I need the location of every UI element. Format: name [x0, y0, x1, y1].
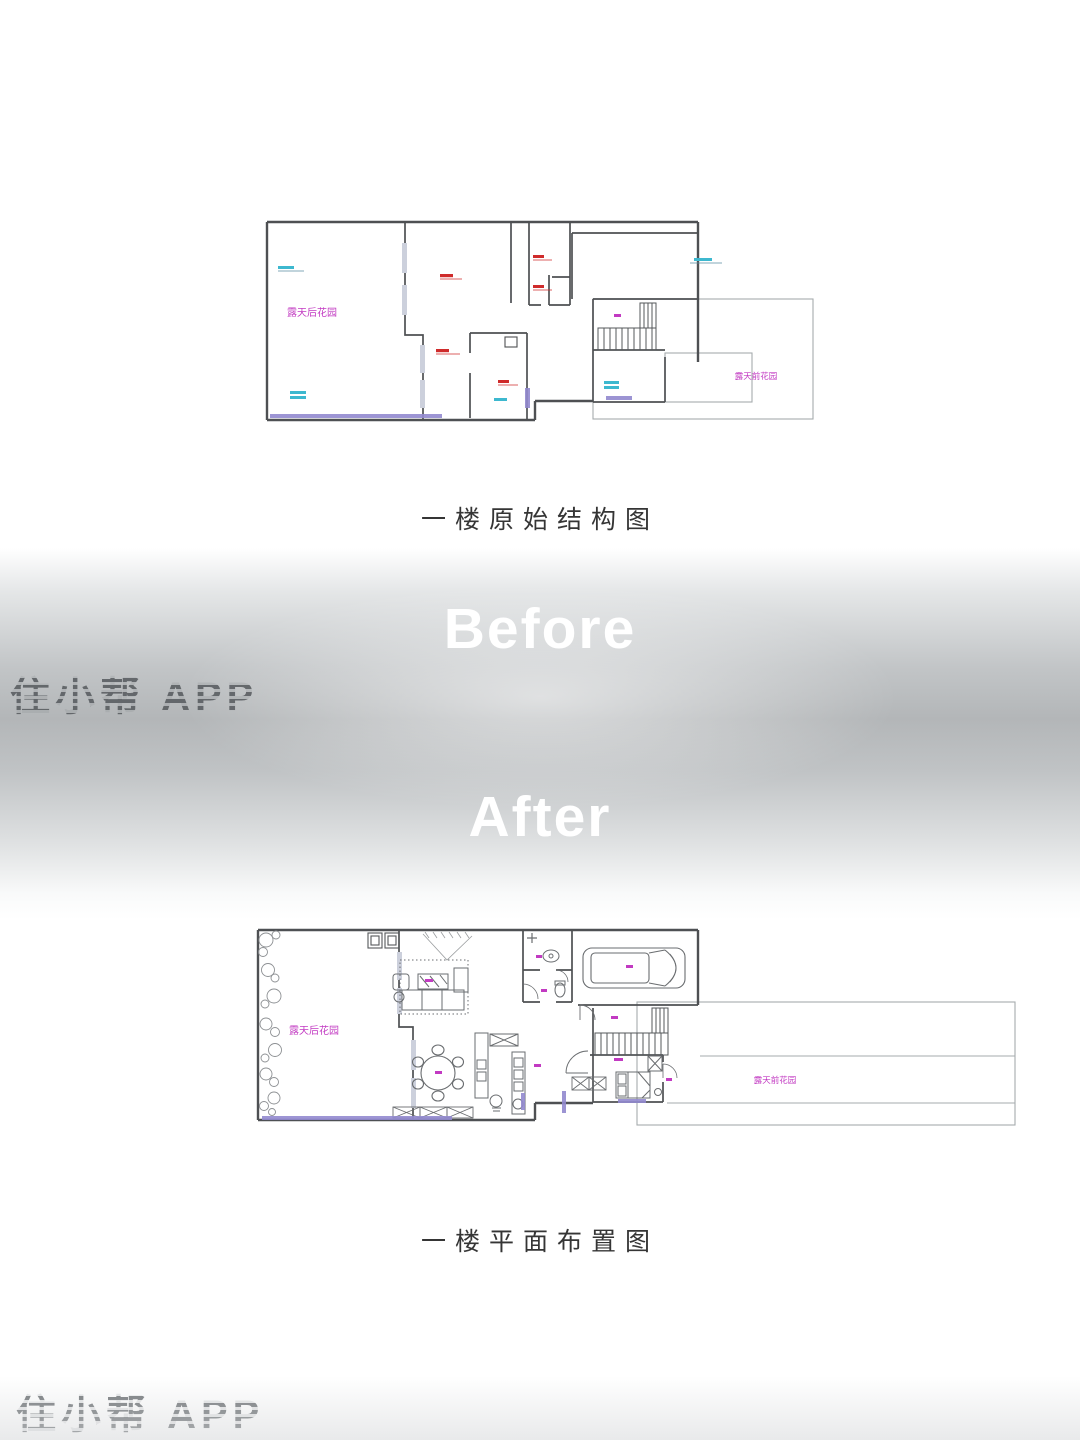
front-garden-label: 露天前花园 [735, 371, 778, 381]
interior-walls [399, 930, 698, 1120]
front-garden-outline [593, 299, 813, 419]
bed-icon [616, 1056, 677, 1098]
bottom-fade [0, 1376, 1080, 1440]
front-garden-outline [637, 1002, 1015, 1125]
floor-plan-original: 露天后花园 露天前花园 [250, 205, 830, 435]
app-watermark: 住小帮 APP [10, 664, 258, 722]
sill-marks [270, 388, 632, 418]
kitchen-counter-icon [475, 1033, 525, 1114]
outer-walls [258, 930, 698, 1120]
caption-original: 一楼原始结构图 [0, 500, 1080, 536]
sill-marks [262, 1091, 646, 1120]
floor-plan-layout: 露天后花园 露天前花园 [250, 922, 1040, 1137]
before-label: Before [0, 596, 1080, 662]
magenta-room-marks [425, 955, 672, 1081]
back-garden-label: 露天后花园 [289, 1024, 339, 1037]
stairs-icon [598, 303, 656, 350]
magenta-tiny-mark [614, 314, 621, 317]
front-garden-label: 露天前花园 [754, 1075, 797, 1085]
poster: 露天后花园 露天前花园 一楼原始结构图 Before 住小帮 APP After [0, 0, 1080, 1440]
sofa-set-icon [393, 932, 472, 1014]
planter-boxes [368, 933, 399, 948]
hall-closet [572, 1077, 606, 1090]
cyan-note-marks [278, 258, 722, 401]
stairs-icon [595, 1008, 668, 1055]
after-label: After [0, 784, 1080, 850]
back-garden-label: 露天后花园 [287, 306, 337, 319]
interior-walls [405, 222, 698, 420]
plants-icon [259, 931, 282, 1116]
outer-walls [267, 222, 698, 420]
red-dimension-marks [436, 255, 552, 385]
car-icon [583, 948, 685, 988]
entry-door-arc [566, 1051, 588, 1073]
before-after-band: Before 住小帮 APP After [0, 548, 1080, 920]
caption-layout: 一楼平面布置图 [0, 1222, 1080, 1258]
